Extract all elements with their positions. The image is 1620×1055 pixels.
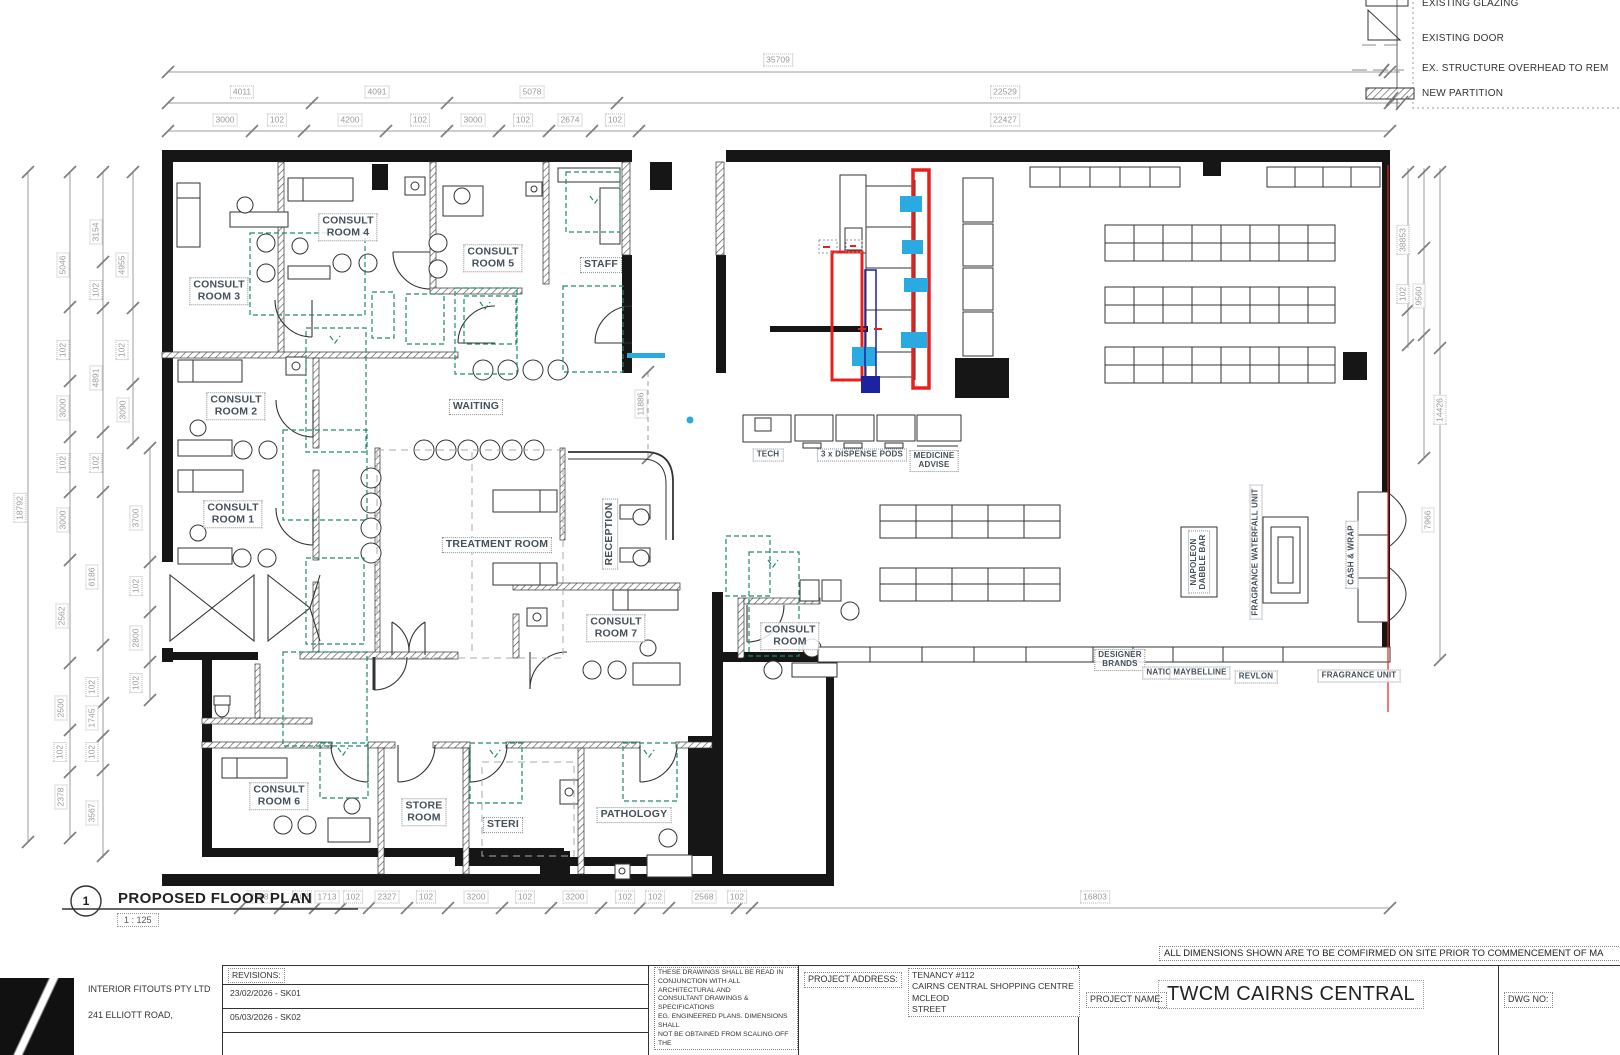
dimension-label: 3200 — [563, 891, 588, 904]
dimension-label: 22427 — [990, 114, 1020, 127]
company-name: INTERIOR FITOUTS PTY LTD — [88, 984, 211, 996]
dimension-label: 38853 — [1397, 225, 1410, 255]
room-label-pathology: PATHOLOGY — [597, 807, 672, 823]
dimension-label: 3090 — [117, 398, 130, 423]
room-label-consult-pharmacy: CONSULT ROOM — [760, 622, 819, 650]
room-label-consult-3: CONSULT ROOM 3 — [189, 277, 248, 305]
dimensions-note: ALL DIMENSIONS SHOWN ARE TO BE COMFIRMED… — [1159, 946, 1620, 961]
dimension-label: 7966 — [1422, 508, 1435, 533]
dimension-label: 102 — [57, 340, 70, 360]
project-address-label: PROJECT ADDRESS: — [804, 972, 902, 988]
dimension-label: 2562 — [56, 604, 69, 629]
revision-row: 05/03/2026 - SK02 — [230, 1012, 301, 1023]
dimension-label: 102 — [605, 114, 625, 127]
dimension-label: 2327 — [375, 891, 400, 904]
dimension-label: 102 — [54, 742, 67, 762]
disclaimer-text: THESE DRAWINGS SHALL BE READ IN CONJUNCT… — [654, 967, 798, 1050]
legend-item-existing-glazing: EXISTING GLAZING — [1422, 0, 1519, 9]
plan-number: 1 — [83, 894, 90, 908]
fixture-label-tech: TECH — [753, 449, 784, 462]
floor-plan-sheet: 35709 4011 4091 5078 22529 3000 102 4200… — [0, 0, 1620, 1055]
dimension-label: 102 — [1397, 284, 1410, 304]
dimension-label: 102 — [130, 673, 143, 693]
room-label-consult-2: CONSULT ROOM 2 — [206, 392, 265, 420]
title-block-border — [222, 965, 1620, 966]
dimension-label: 3000 — [213, 114, 238, 127]
dimension-label: 6186 — [86, 565, 99, 590]
room-label-consult-7: CONSULT ROOM 7 — [586, 614, 645, 642]
dimension-label: 3700 — [130, 506, 143, 531]
dimension-label: 102 — [343, 891, 363, 904]
dimension-label: 102 — [86, 742, 99, 762]
dimension-label: 102 — [727, 891, 747, 904]
dimension-label: 14426 — [1434, 395, 1447, 425]
legend-item-overhead: EX. STRUCTURE OVERHEAD TO REM — [1422, 63, 1609, 74]
fixture-label-fragrance-unit: FRAGRANCE UNIT — [1318, 670, 1401, 683]
dimension-label: 3200 — [464, 891, 489, 904]
company-address: 241 ELLIOTT ROAD, — [88, 1010, 173, 1022]
dimension-label: 3567 — [86, 801, 99, 826]
dimension-label: 2500 — [55, 696, 68, 721]
dimension-label: 5078 — [520, 86, 545, 99]
dimension-label: 2674 — [558, 114, 583, 127]
dimension-label: 11886 — [635, 389, 648, 418]
room-label-consult-1: CONSULT ROOM 1 — [203, 500, 262, 528]
plan-title: PROPOSED FLOOR PLAN — [118, 890, 312, 907]
dimension-label: 3000 — [57, 508, 70, 533]
dimension-label: 102 — [90, 280, 103, 300]
fixture-label-napoleon: NAPOLEON DABBLE BAR — [1188, 531, 1210, 594]
dimension-label: 9560 — [1413, 284, 1426, 309]
dimension-label: 3000 — [57, 396, 70, 421]
project-name-label: PROJECT NAME: — [1086, 992, 1167, 1008]
revisions-label: REVISIONS: — [228, 968, 285, 983]
room-label-treatment: TREATMENT ROOM — [442, 537, 552, 553]
dimension-label: 4091 — [365, 86, 390, 99]
fixture-label-revlon: REVLON — [1235, 671, 1278, 684]
dimension-label: 18792 — [14, 493, 27, 523]
dimension-label: 102 — [116, 340, 129, 360]
fixture-label-dispense-pods: 3 x DISPENSE PODS — [817, 449, 907, 462]
fixture-label-maybelline: MAYBELLINE — [1169, 667, 1230, 680]
dimension-label: 102 — [615, 891, 635, 904]
room-label-reception: RECEPTION — [602, 498, 618, 569]
dimension-label: 4200 — [338, 114, 363, 127]
fixture-label-designer-brands: DESIGNER BRANDS — [1094, 649, 1145, 671]
room-label-staff: STAFF — [580, 257, 622, 273]
revision-row: 23/02/2026 - SK01 — [230, 988, 301, 999]
dimension-label: 102 — [86, 677, 99, 697]
dimension-label: 2378 — [55, 785, 68, 810]
room-label-waiting: WAITING — [449, 399, 503, 415]
plan-scale: 1 : 125 — [117, 913, 159, 927]
dimension-label: 102 — [410, 114, 430, 127]
fixture-label-cash-wrap: CASH & WRAP — [1346, 521, 1359, 589]
dimension-label: 3000 — [461, 114, 486, 127]
legend-item-new-partition: NEW PARTITION — [1422, 88, 1503, 99]
room-label-consult-6: CONSULT ROOM 6 — [249, 782, 308, 810]
room-label-steri: STERI — [483, 817, 523, 833]
project-address: TENANCY #112 CAIRNS CENTRAL SHOPPING CEN… — [908, 968, 1080, 1017]
fixture-label-medicine-advise: MEDICINE ADVISE — [910, 450, 959, 472]
dimension-label: 22529 — [990, 86, 1020, 99]
dimension-label: 102 — [90, 453, 103, 473]
legend-item-existing-door: EXISTING DOOR — [1422, 33, 1504, 44]
navy-block — [861, 376, 880, 393]
room-label-store: STORE ROOM — [402, 798, 447, 826]
dimension-label: 102 — [57, 453, 70, 473]
dimension-label: 5046 — [57, 253, 70, 278]
dimension-label: 4011 — [230, 86, 254, 99]
dwg-number-label: DWG NO: — [1504, 992, 1553, 1008]
dimension-label: 2800 — [130, 626, 143, 651]
company-logo — [0, 978, 74, 1055]
dimension-label: 4955 — [116, 253, 129, 278]
fixture-label-fragrance-waterfall: FRAGRANCE WATERFALL UNIT — [1250, 484, 1263, 619]
dimension-label: 1713 — [315, 891, 340, 904]
dimension-label: 102 — [513, 114, 533, 127]
dimension-label: 4891 — [90, 366, 103, 391]
dimension-label: 102 — [130, 576, 143, 596]
dimension-label: 102 — [515, 891, 535, 904]
dimension-label: 16803 — [1080, 891, 1110, 904]
room-label-consult-5: CONSULT ROOM 5 — [463, 244, 522, 272]
glazing-symbol — [1366, 0, 1408, 6]
furniture — [177, 167, 1406, 879]
dimension-label: 3154 — [90, 220, 103, 245]
dimension-label: 1745 — [86, 706, 99, 731]
dimension-label: 102 — [416, 891, 436, 904]
room-label-consult-4: CONSULT ROOM 4 — [318, 213, 377, 241]
dimension-label: 35709 — [763, 54, 793, 67]
dimension-label: 102 — [645, 891, 665, 904]
door-symbol — [1368, 10, 1400, 40]
dimension-label: 2568 — [692, 891, 717, 904]
project-name: TWCM CAIRNS CENTRAL — [1158, 980, 1424, 1009]
dimension-label: 102 — [267, 114, 287, 127]
